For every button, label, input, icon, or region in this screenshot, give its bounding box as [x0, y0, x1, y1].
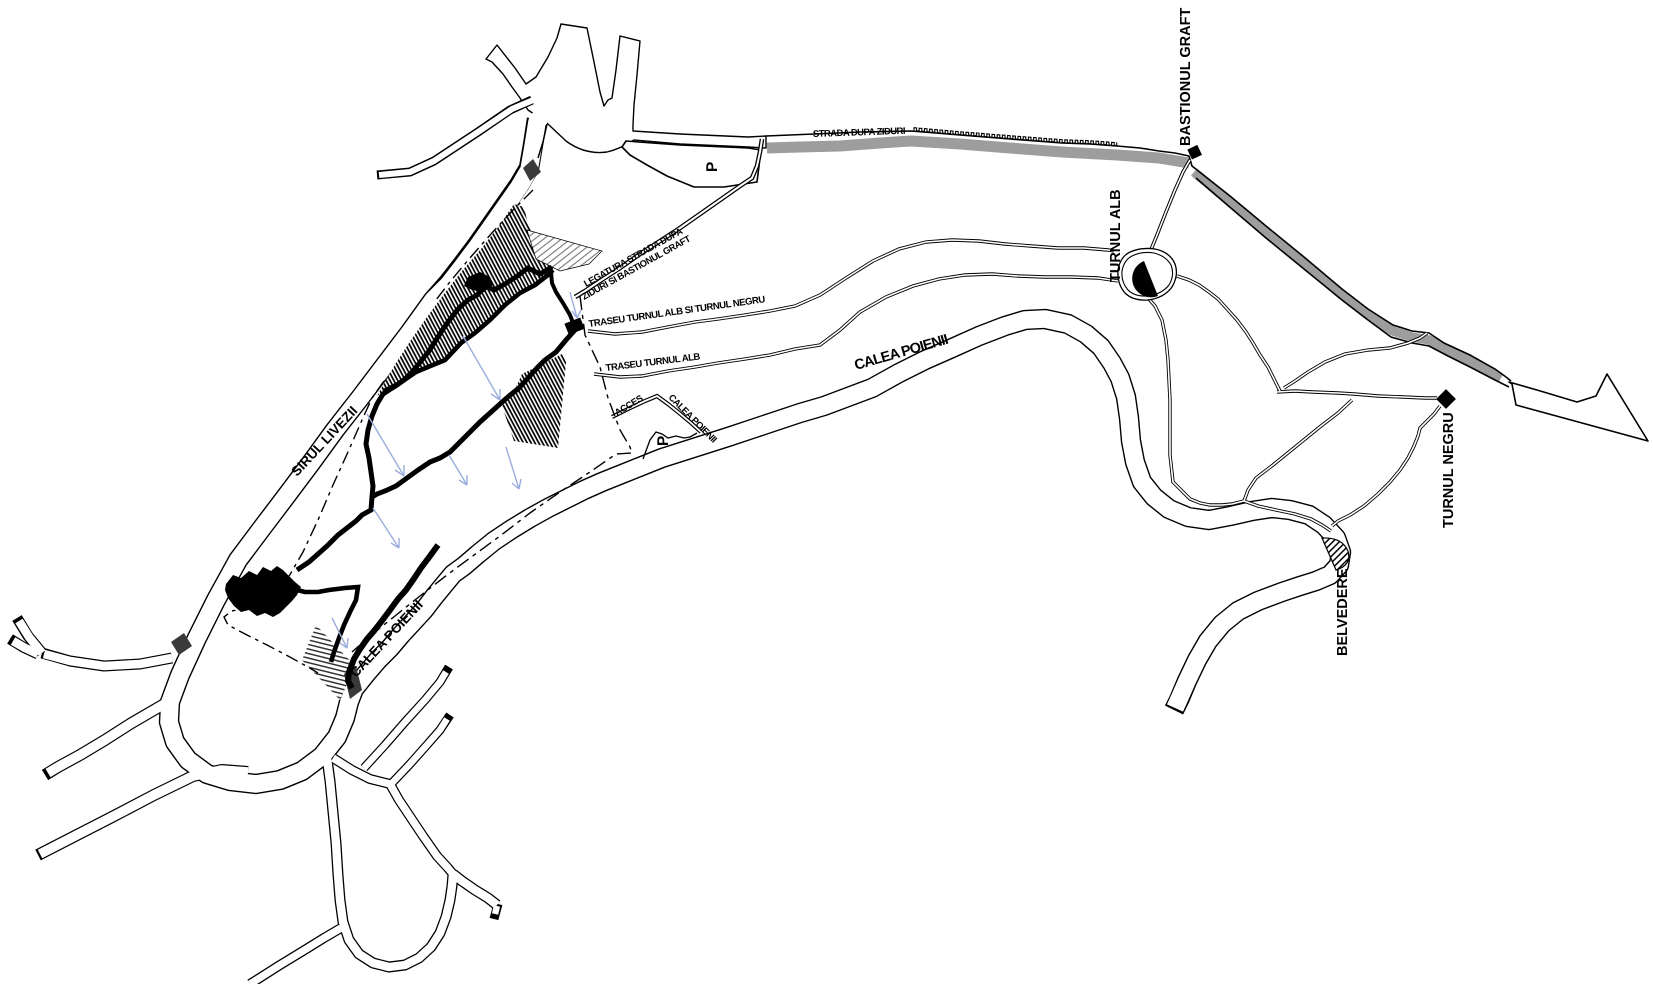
svg-text:BASTIONUL GRAFT: BASTIONUL GRAFT: [1178, 8, 1194, 146]
svg-text:P: P: [655, 436, 672, 446]
svg-text:TURNUL ALB: TURNUL ALB: [1108, 189, 1124, 282]
svg-text:TURNUL NEGRU: TURNUL NEGRU: [1441, 412, 1457, 528]
svg-text:P: P: [704, 162, 721, 172]
svg-text:BELVEDERE: BELVEDERE: [1335, 568, 1351, 656]
